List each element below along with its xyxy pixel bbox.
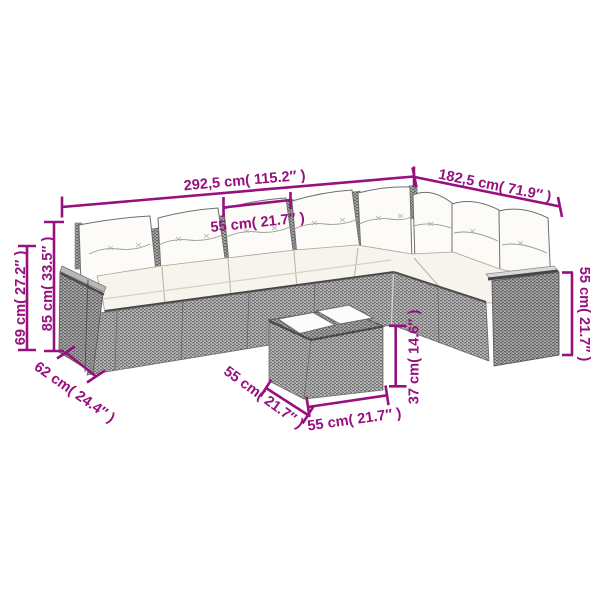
svg-text:69 cm( 27.2″ ): 69 cm( 27.2″ ) [13,251,29,346]
svg-text:55 cm( 21.7″ ): 55 cm( 21.7″ ) [576,267,592,362]
svg-text:37 cm( 14.6″ ): 37 cm( 14.6″ ) [407,310,423,405]
svg-text:85 cm( 33.5″ ): 85 cm( 33.5″ ) [40,237,56,332]
